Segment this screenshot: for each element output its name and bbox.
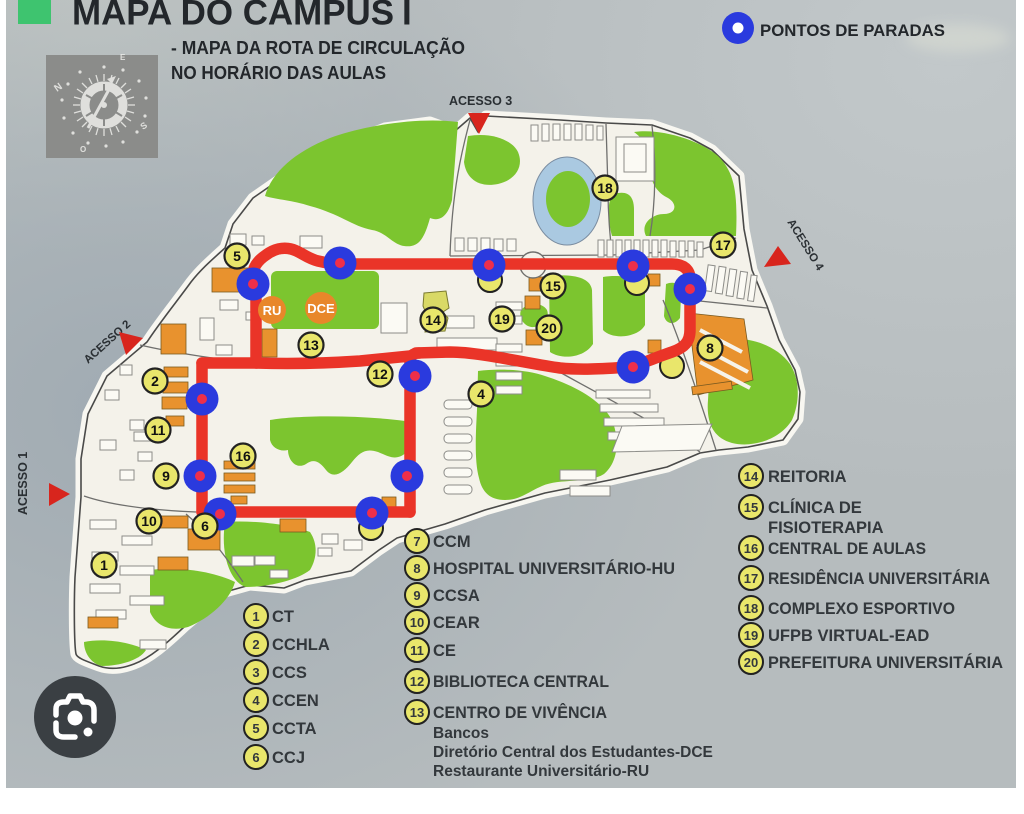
svg-text:14: 14 [425, 312, 441, 328]
svg-text:ACESSO 1: ACESSO 1 [16, 452, 30, 515]
svg-text:COMPLEXO ESPORTIVO: COMPLEXO ESPORTIVO [768, 600, 955, 618]
svg-text:10: 10 [410, 615, 424, 630]
svg-text:15: 15 [744, 500, 758, 515]
svg-text:CENTRO DE VIVÊNCIA: CENTRO DE VIVÊNCIA [433, 703, 607, 722]
svg-text:CE: CE [433, 642, 456, 660]
svg-text:18: 18 [744, 601, 758, 616]
svg-text:8: 8 [706, 340, 714, 356]
svg-text:1: 1 [252, 609, 259, 624]
svg-text:FISIOTERAPIA: FISIOTERAPIA [768, 519, 884, 537]
svg-text:CCM: CCM [433, 533, 471, 551]
svg-text:16: 16 [235, 448, 251, 464]
svg-text:5: 5 [233, 248, 241, 264]
svg-text:CCSA: CCSA [433, 587, 480, 605]
svg-text:NO HORÁRIO DAS AULAS: NO HORÁRIO DAS AULAS [171, 62, 386, 83]
svg-text:2: 2 [151, 373, 159, 389]
svg-text:DCE: DCE [307, 301, 335, 316]
svg-text:CEAR: CEAR [433, 614, 480, 632]
svg-text:10: 10 [141, 513, 157, 529]
svg-text:MAPA DO CAMPUS: MAPA DO CAMPUS [72, 0, 394, 33]
svg-text:17: 17 [715, 237, 731, 253]
svg-text:9: 9 [413, 588, 420, 603]
svg-text:18: 18 [597, 180, 613, 196]
svg-text:CT: CT [272, 608, 294, 626]
svg-text:6: 6 [252, 750, 259, 765]
svg-text:20: 20 [744, 655, 758, 670]
svg-text:REITORIA: REITORIA [768, 468, 847, 486]
svg-text:CCS: CCS [272, 664, 307, 682]
svg-text:13: 13 [303, 337, 319, 353]
svg-text:UFPB VIRTUAL-EAD: UFPB VIRTUAL-EAD [768, 627, 929, 645]
svg-text:17: 17 [744, 571, 758, 586]
svg-text:Diretório Central dos Estudant: Diretório Central dos Estudantes-DCE [433, 744, 713, 761]
svg-text:15: 15 [545, 278, 561, 294]
svg-text:12: 12 [372, 366, 388, 382]
svg-text:2: 2 [252, 637, 259, 652]
svg-text:13: 13 [410, 705, 424, 720]
svg-text:3: 3 [252, 665, 259, 680]
svg-text:PONTOS DE PARADAS: PONTOS DE PARADAS [760, 21, 945, 40]
svg-text:RESIDÊNCIA UNIVERSITÁRIA: RESIDÊNCIA UNIVERSITÁRIA [768, 569, 990, 588]
svg-text:CCJ: CCJ [272, 749, 305, 767]
svg-text:19: 19 [744, 628, 758, 643]
svg-text:Bancos: Bancos [433, 725, 489, 742]
svg-text:CENTRAL DE AULAS: CENTRAL DE AULAS [768, 540, 926, 558]
svg-text:7: 7 [413, 534, 420, 549]
svg-text:6: 6 [201, 518, 209, 534]
svg-text:CCEN: CCEN [272, 692, 319, 710]
svg-text:11: 11 [410, 643, 424, 658]
svg-text:PREFEITURA UNIVERSITÁRIA: PREFEITURA UNIVERSITÁRIA [768, 653, 1003, 672]
svg-text:ACESSO 3: ACESSO 3 [449, 94, 512, 108]
svg-text:E: E [120, 53, 126, 62]
svg-text:- MAPA DA ROTA DE CIRCULAÇÃO: - MAPA DA ROTA DE CIRCULAÇÃO [171, 37, 465, 58]
svg-text:14: 14 [744, 469, 759, 484]
svg-text:RU: RU [263, 303, 282, 318]
svg-text:11: 11 [151, 422, 166, 438]
svg-text:Restaurante Universitário-RU: Restaurante Universitário-RU [433, 763, 649, 780]
svg-text:16: 16 [744, 541, 758, 556]
svg-text:HOSPITAL UNIVERSITÁRIO-HU: HOSPITAL UNIVERSITÁRIO-HU [433, 559, 675, 578]
svg-text:O: O [80, 145, 86, 154]
svg-text:CCHLA: CCHLA [272, 636, 330, 654]
svg-text:12: 12 [410, 674, 424, 689]
svg-text:5: 5 [252, 721, 259, 736]
svg-text:CCTA: CCTA [272, 720, 317, 738]
svg-text:4: 4 [252, 693, 260, 708]
svg-text:BIBLIOTECA CENTRAL: BIBLIOTECA CENTRAL [433, 673, 609, 691]
svg-text:19: 19 [494, 311, 510, 327]
svg-text:4: 4 [477, 386, 485, 402]
svg-text:9: 9 [162, 468, 170, 484]
svg-text:20: 20 [541, 320, 557, 336]
svg-text:8: 8 [413, 561, 420, 576]
svg-text:I: I [402, 0, 412, 33]
svg-text:1: 1 [100, 557, 108, 573]
svg-text:CLÍNICA DE: CLÍNICA DE [768, 498, 862, 517]
